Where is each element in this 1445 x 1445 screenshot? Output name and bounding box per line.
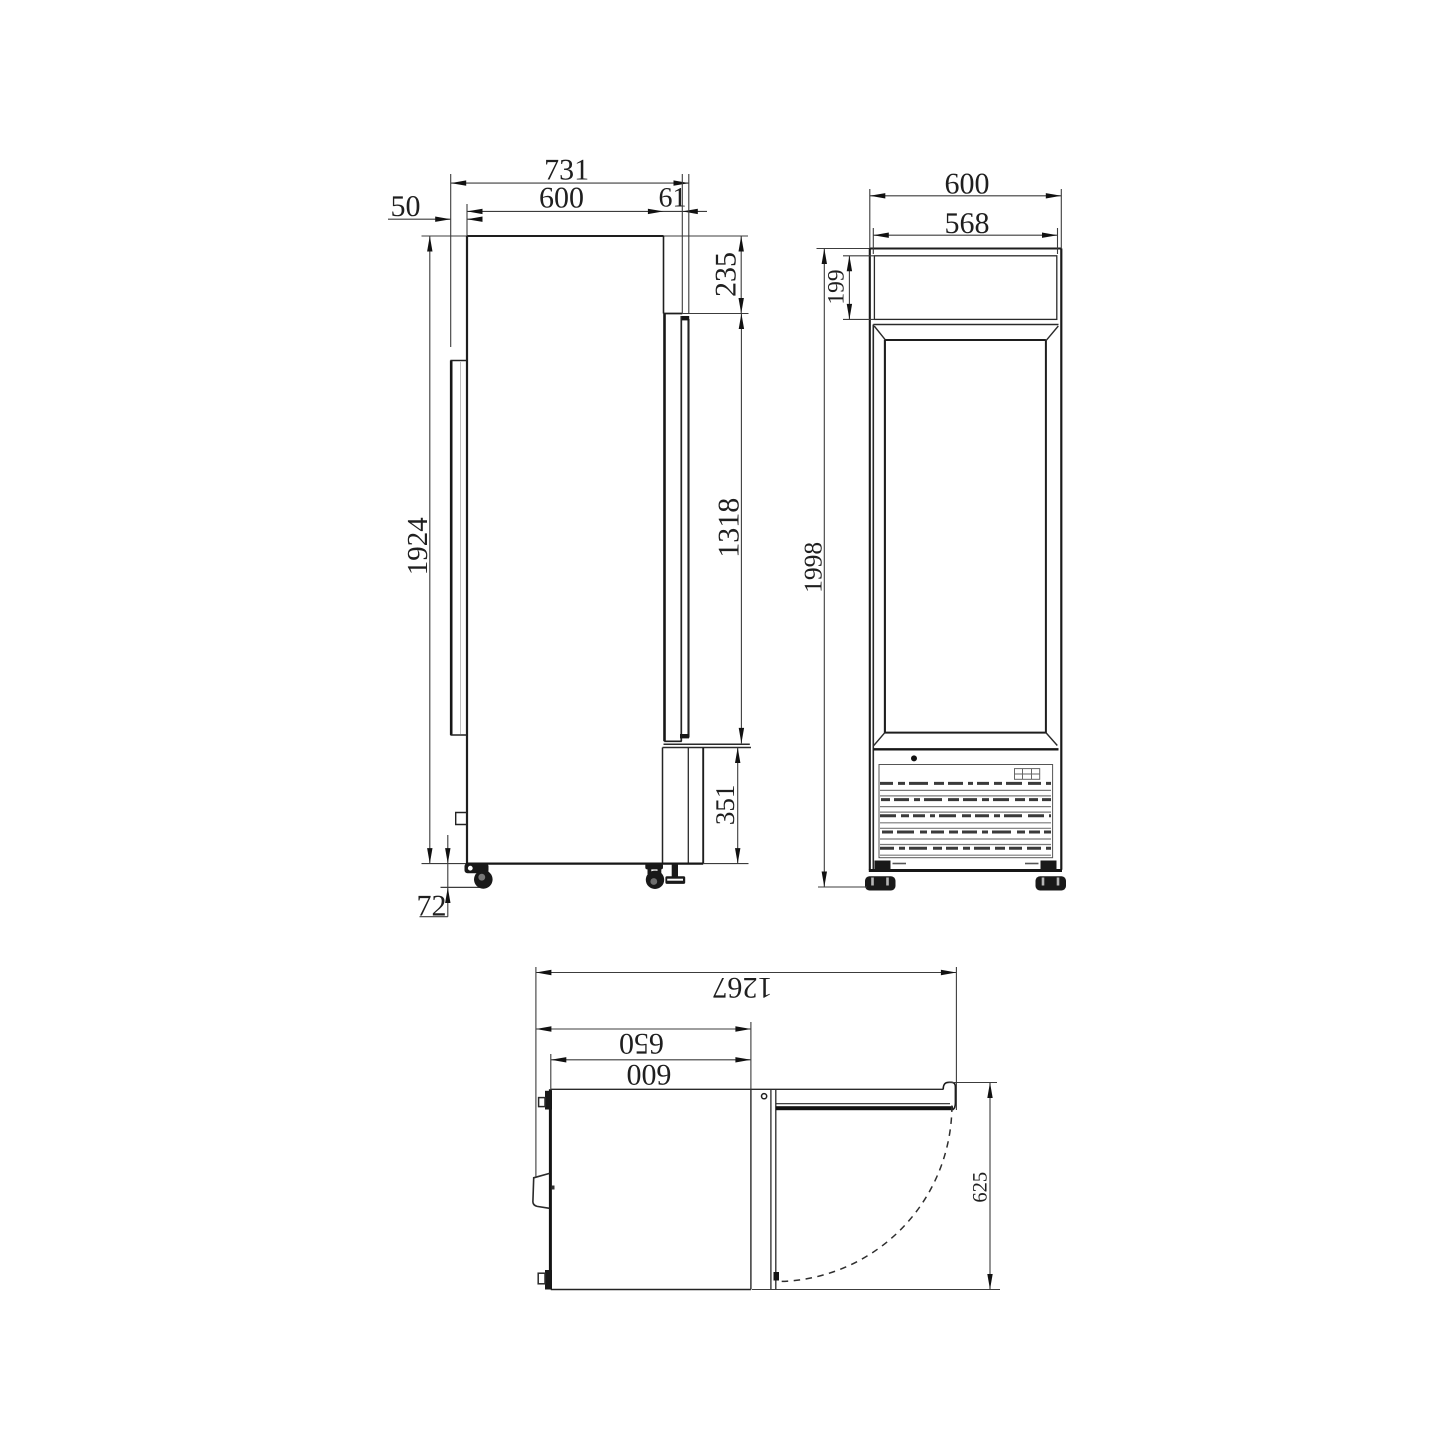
svg-text:235: 235 (710, 252, 743, 297)
svg-text:625: 625 (970, 1172, 992, 1203)
svg-text:1267: 1267 (713, 971, 773, 1004)
svg-text:600: 600 (627, 1058, 672, 1091)
svg-text:1924: 1924 (402, 517, 434, 576)
svg-text:199: 199 (824, 269, 850, 304)
svg-text:351: 351 (710, 785, 740, 826)
svg-text:600: 600 (945, 167, 990, 200)
svg-text:1998: 1998 (799, 542, 828, 593)
svg-text:650: 650 (619, 1027, 664, 1060)
svg-text:568: 568 (945, 207, 990, 240)
svg-text:72: 72 (417, 890, 447, 923)
svg-text:50: 50 (391, 190, 421, 223)
svg-text:1318: 1318 (713, 498, 746, 558)
svg-text:600: 600 (539, 181, 584, 214)
